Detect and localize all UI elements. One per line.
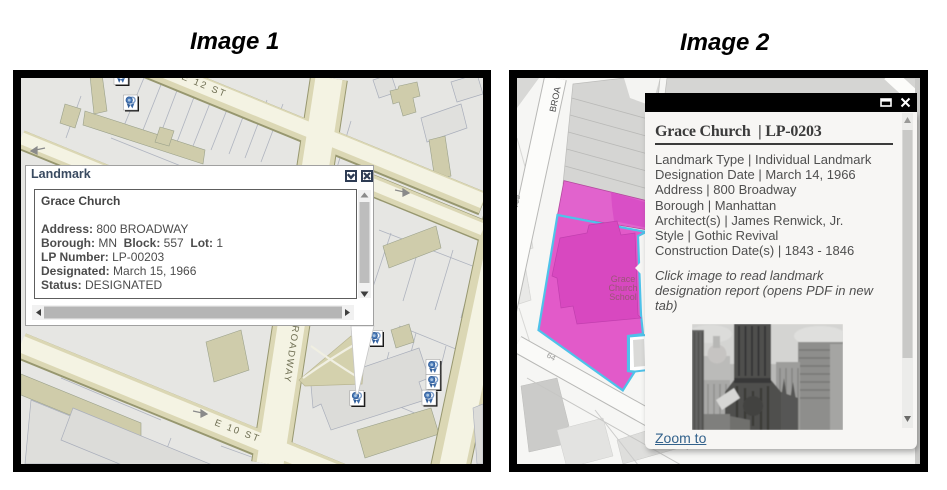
svg-text:School: School	[609, 292, 637, 302]
